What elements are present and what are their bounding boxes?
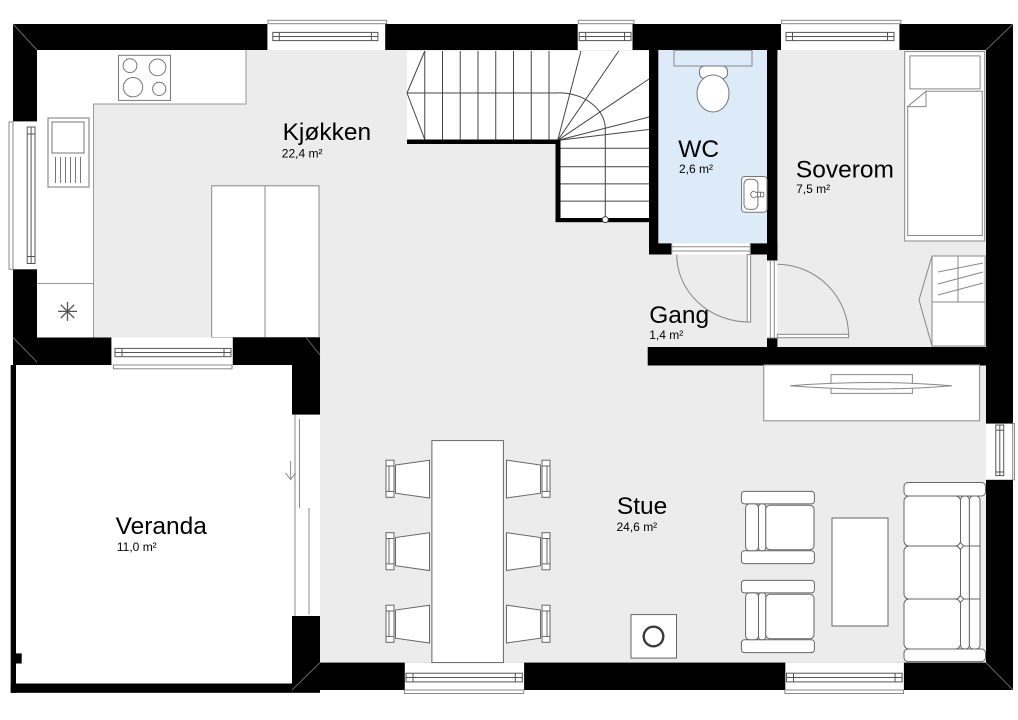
svg-text:1,4 m²: 1,4 m²	[649, 328, 683, 342]
svg-text:Stue: Stue	[617, 493, 667, 520]
svg-text:22,4 m²: 22,4 m²	[282, 146, 323, 160]
svg-text:2,6 m²: 2,6 m²	[679, 162, 713, 176]
svg-text:Soverom: Soverom	[796, 156, 894, 183]
svg-text:Kjøkken: Kjøkken	[283, 119, 372, 146]
svg-text:7,5 m²: 7,5 m²	[796, 182, 830, 196]
svg-text:24,6 m²: 24,6 m²	[617, 520, 658, 534]
svg-text:WC: WC	[678, 136, 719, 163]
svg-text:Veranda: Veranda	[116, 513, 208, 540]
svg-text:11,0 m²: 11,0 m²	[117, 540, 157, 554]
svg-text:Gang: Gang	[649, 302, 709, 329]
